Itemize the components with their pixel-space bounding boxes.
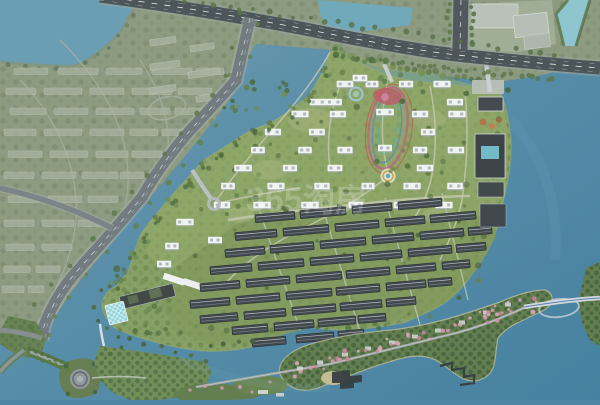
svg-text:淘房: 淘房 (303, 182, 367, 218)
svg-text:365: 365 (246, 181, 303, 219)
